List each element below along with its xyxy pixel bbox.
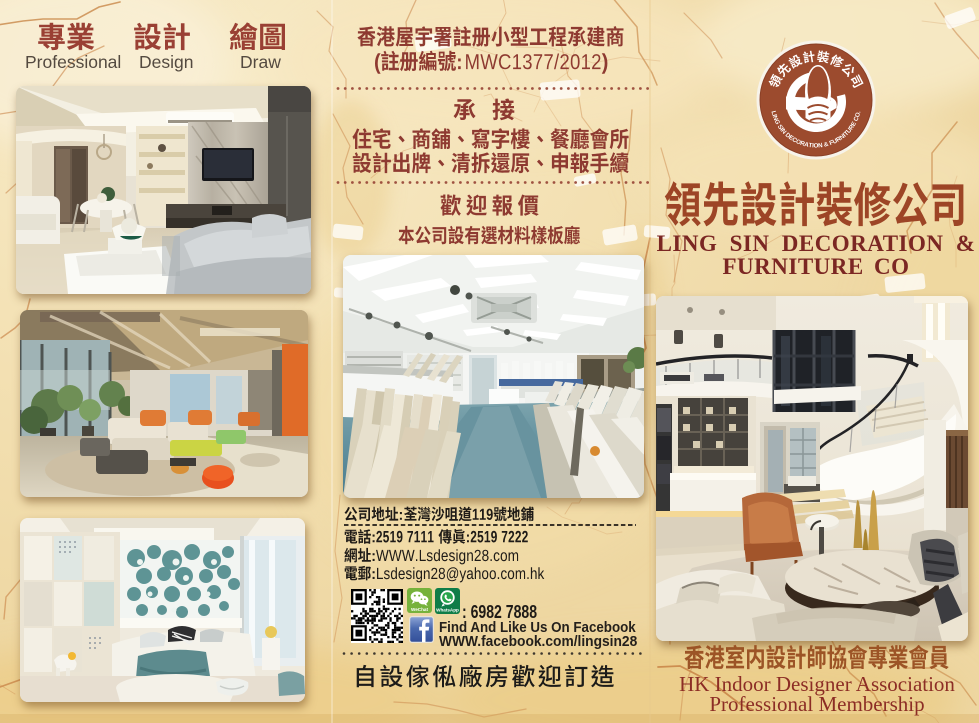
svg-text:WhatsApp: WhatsApp [436, 608, 459, 613]
svg-text:WeChat: WeChat [411, 607, 428, 612]
